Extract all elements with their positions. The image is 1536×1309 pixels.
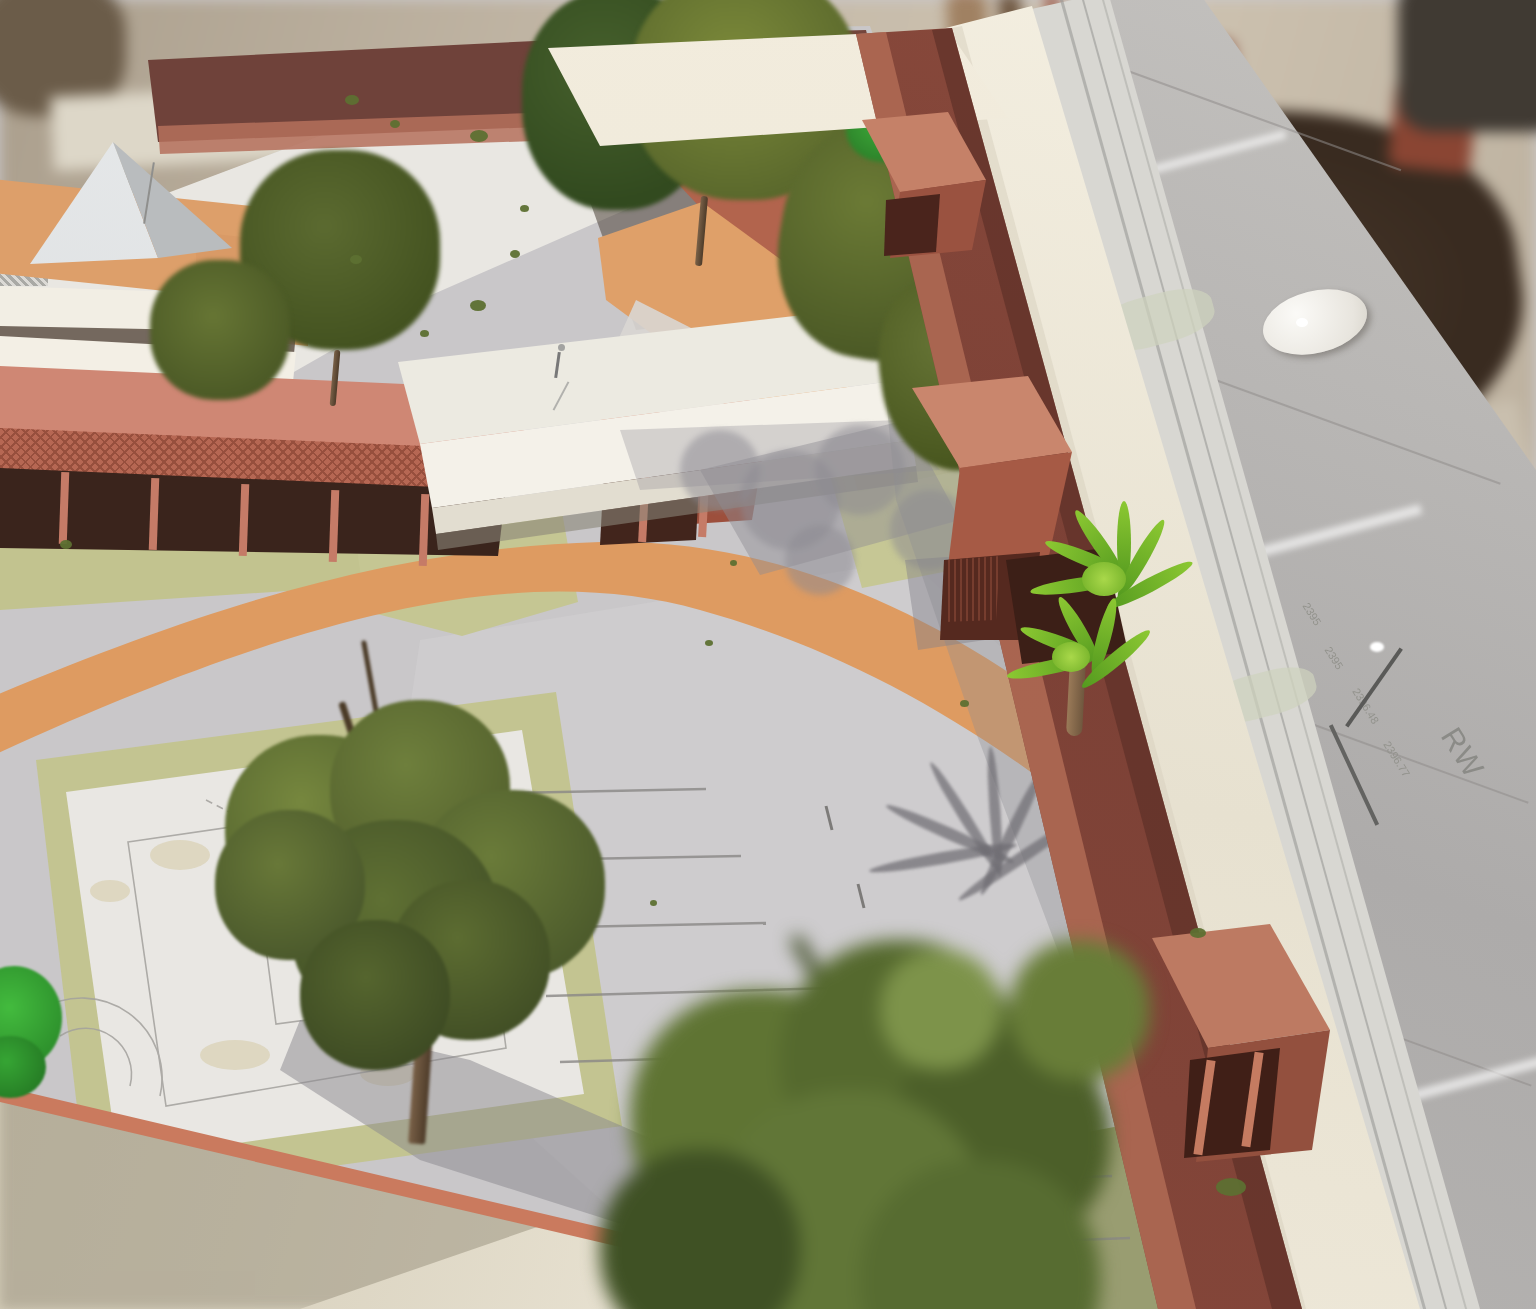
tree-foliage <box>880 950 1000 1070</box>
foreground-blurred-tree <box>0 0 1536 1309</box>
tree-foliage <box>1010 940 1150 1080</box>
architectural-model-photo: 2395 2395 2396.48 2396.77 RW <box>0 0 1536 1309</box>
